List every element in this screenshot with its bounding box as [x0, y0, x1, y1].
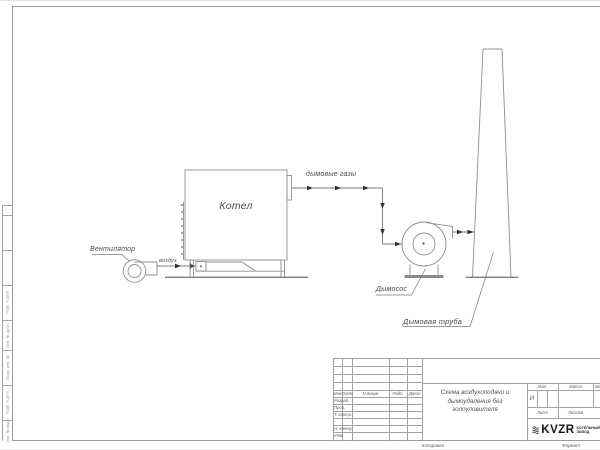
staff-row-nkontr: Н. контр.: [334, 425, 354, 432]
format-label: Формат: [562, 442, 600, 449]
flue-gas-arrows: [307, 186, 401, 246]
staff-row-razrab: Разраб.: [334, 397, 354, 404]
boiler-symbol: [165, 170, 308, 277]
coil-icon: [532, 423, 539, 438]
staff-row-empty: [334, 418, 354, 425]
flue-gas-line: [292, 188, 403, 244]
fan-symbol: [92, 255, 157, 283]
company-logo: KVZR КОТЕЛЬНЫЙ ЗАВОД: [528, 419, 600, 441]
smoke-exhauster-label: Дымосос: [376, 286, 407, 293]
copied-by-label: Копировал: [405, 442, 461, 449]
boiler-label: Котел: [185, 200, 287, 212]
col-header-list: Лист: [342, 390, 352, 397]
staff-row-prov: Пров.: [334, 404, 354, 411]
col-header-data: Дата: [407, 390, 422, 397]
smoke-exhauster-symbol: [376, 222, 453, 295]
sheet-header: Лист: [527, 407, 558, 418]
air-flow-label: воздух: [159, 258, 177, 264]
sheets-header: Листов: [558, 407, 593, 418]
drawing-sheet: Подп. и дата Инв. № дубл. Взам. инв. № П…: [0, 0, 600, 450]
chimney-symbol: [403, 49, 518, 327]
document-title: Схема воздухоподачи и дымоудаления без з…: [423, 384, 527, 420]
staff-row-utv: Утв.: [334, 432, 354, 439]
col-header-podp: Подп.: [389, 390, 407, 397]
flue-gas-label: дымовые газы: [306, 171, 356, 178]
lit-header: Лит.: [527, 383, 558, 390]
lit-value: И: [527, 390, 537, 407]
scale-header: Масштаб: [595, 383, 600, 390]
fan-label: Вентилятор: [90, 246, 135, 253]
col-header-doc: N докум: [352, 390, 389, 397]
staff-row-tkontr: Т. контр.: [334, 411, 354, 418]
logo-text: KVZR: [541, 424, 574, 436]
logo-caption: КОТЕЛЬНЫЙ ЗАВОД: [577, 426, 600, 435]
chimney-label: Дымовая труба: [403, 317, 462, 326]
mass-header: Масса: [558, 383, 593, 390]
